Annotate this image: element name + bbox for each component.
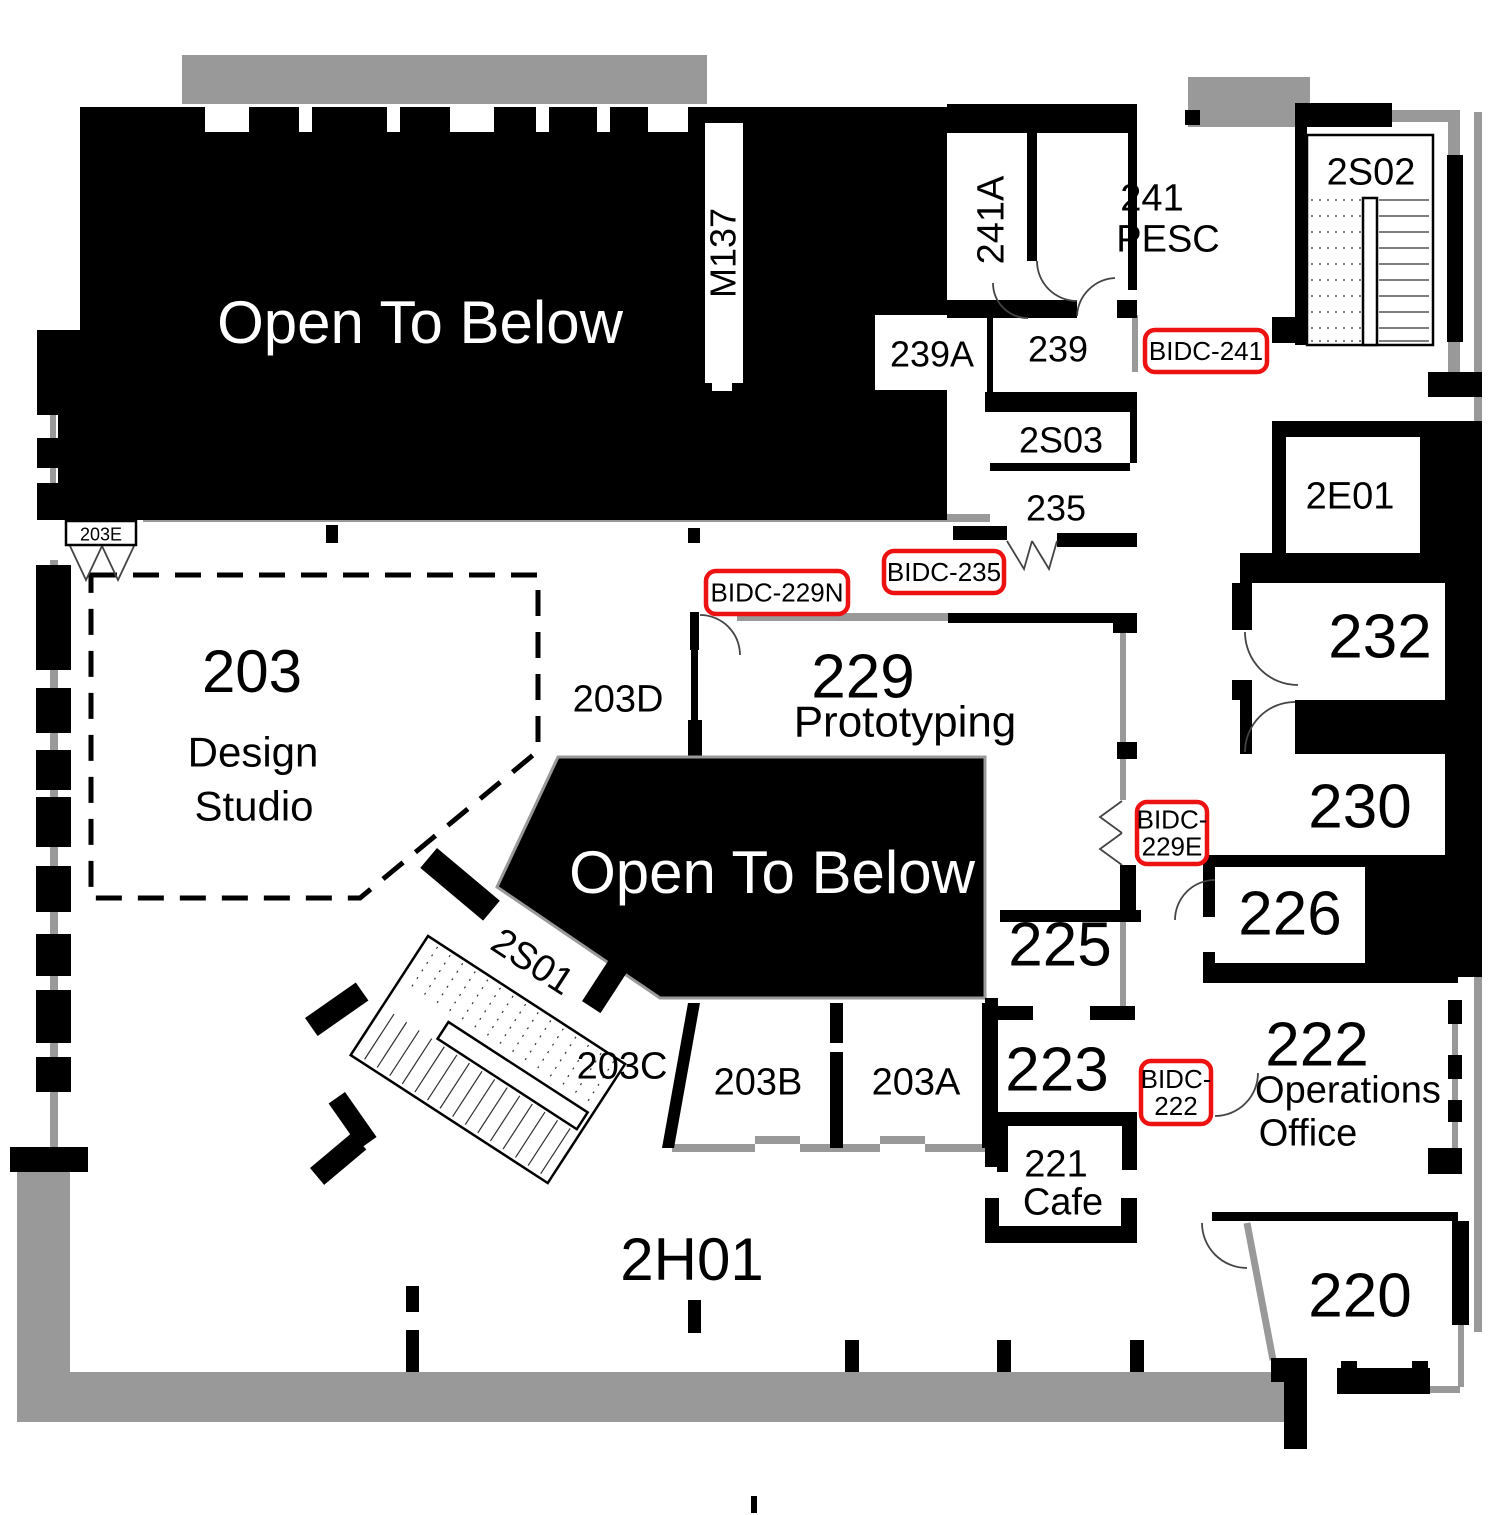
bidc-tag-text: BIDC-235: [887, 557, 1001, 587]
bidc-tag-text: BIDC-: [1137, 805, 1208, 835]
room-label-cafe: Cafe: [1023, 1181, 1103, 1223]
room-label-203a: 203A: [872, 1061, 961, 1103]
room-label-open-to-below: Open To Below: [569, 839, 975, 906]
room-label-office: Office: [1259, 1112, 1358, 1154]
room-label-226: 226: [1238, 880, 1341, 949]
room-label-pesc: PESC: [1116, 218, 1219, 260]
room-label-220: 220: [1308, 1262, 1411, 1331]
floorplan-svg: Open To BelowOpen To BelowM137241A241PES…: [0, 0, 1506, 1515]
bidc-tag-bidc-241: BIDC-241: [1145, 330, 1267, 372]
bidc-tag-text: BIDC-: [1141, 1064, 1212, 1094]
room-label-230: 230: [1308, 773, 1411, 842]
room-label-2e01: 2E01: [1306, 475, 1395, 517]
room-label-203b: 203B: [714, 1061, 803, 1103]
bidc-tag-text: BIDC-241: [1149, 336, 1263, 366]
room-label-operations: Operations: [1255, 1069, 1441, 1111]
bidc-tag-bidc-222: BIDC-222: [1141, 1061, 1212, 1124]
room-label-2s02: 2S02: [1327, 151, 1416, 193]
room-label-m137: M137: [703, 208, 744, 298]
room-label-239: 239: [1028, 329, 1088, 370]
room-label-203c: 203C: [577, 1045, 668, 1087]
room-label-225: 225: [1008, 911, 1111, 980]
room-label-203d: 203D: [573, 678, 664, 720]
room-label-232: 232: [1328, 603, 1431, 672]
room-label-open-to-below: Open To Below: [217, 289, 623, 356]
room-label-241: 241: [1120, 177, 1183, 219]
room-label-203e: 203E: [80, 524, 122, 544]
room-label-239a: 239A: [890, 334, 974, 375]
bidc-tag-text: BIDC-229N: [711, 578, 844, 608]
room-label-235: 235: [1026, 488, 1086, 529]
bidc-tag-text: 229E: [1142, 832, 1203, 862]
room-label-241a: 241A: [970, 175, 1012, 264]
room-label-2h01: 2H01: [620, 1226, 763, 1293]
room-label-design: Design: [188, 729, 319, 776]
floorplan-page: Open To BelowOpen To BelowM137241A241PES…: [0, 0, 1506, 1515]
room-label-2s03: 2S03: [1019, 420, 1103, 461]
room-label-221: 221: [1024, 1143, 1087, 1185]
room-label-203: 203: [202, 638, 302, 705]
room-label-studio: Studio: [194, 783, 313, 830]
bidc-tag-text: 222: [1154, 1091, 1197, 1121]
room-label-223: 223: [1005, 1036, 1108, 1105]
bidc-tag-bidc-235: BIDC-235: [884, 551, 1004, 593]
bidc-tag-bidc-229e: BIDC-229E: [1137, 802, 1208, 864]
bidc-tag-bidc-229n: BIDC-229N: [706, 571, 848, 614]
room-label-prototyping: Prototyping: [794, 697, 1017, 746]
